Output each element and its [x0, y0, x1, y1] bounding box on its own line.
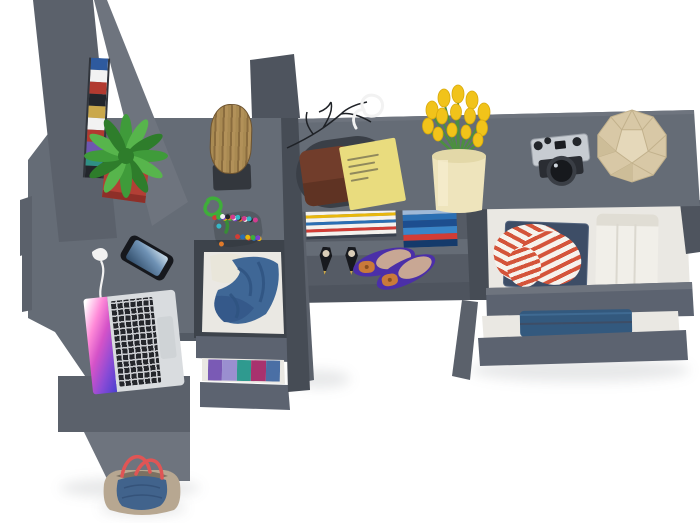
stripe — [89, 94, 107, 107]
striped-shirt — [494, 216, 590, 294]
folded-clothes — [208, 359, 280, 381]
fern-plant — [90, 118, 162, 194]
stripe — [208, 359, 223, 380]
tote-bag — [96, 446, 188, 523]
pompom-dot — [219, 241, 225, 247]
stripe — [90, 70, 108, 83]
laptop-keyboard[interactable] — [111, 297, 162, 387]
laptop[interactable] — [83, 289, 185, 394]
scene-3d-furniture-top-view — [0, 0, 700, 523]
denim-jacket — [202, 250, 286, 336]
stripe — [251, 360, 266, 381]
geometric-decor — [594, 104, 670, 186]
stripe — [88, 106, 106, 119]
stripe — [237, 360, 252, 381]
white-trousers — [595, 213, 658, 288]
stripe — [265, 360, 280, 381]
magazine-stack — [306, 208, 397, 239]
tulip-bouquet — [420, 88, 498, 216]
laptop-base — [107, 289, 185, 392]
yellow-notepad — [339, 138, 406, 211]
white-glasses — [348, 88, 390, 136]
pompom-dot — [216, 223, 222, 229]
pompom-dot — [253, 217, 259, 223]
wooden-stool — [209, 103, 253, 174]
vintage-camera — [527, 123, 593, 191]
stripe — [222, 360, 237, 381]
stripe — [89, 82, 107, 95]
stripe — [91, 58, 109, 71]
laptop-trackpad[interactable] — [157, 316, 177, 359]
